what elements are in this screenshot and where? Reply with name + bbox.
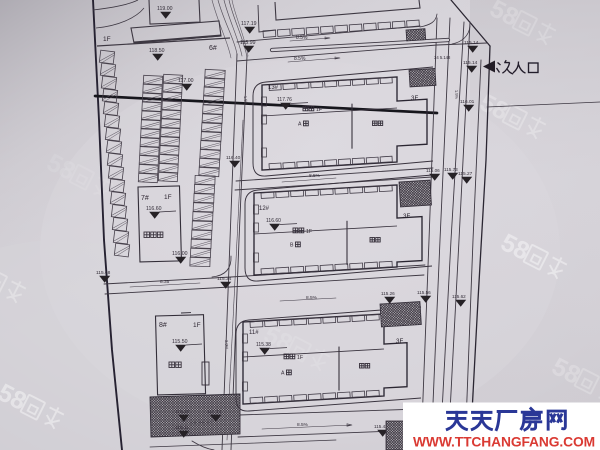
svg-text:117.76: 117.76 (277, 97, 292, 103)
svg-text:116.60: 116.60 (266, 218, 281, 224)
svg-text:6#: 6# (209, 45, 217, 52)
svg-text:115.27: 115.27 (458, 171, 473, 177)
svg-text:11#: 11# (249, 330, 259, 336)
svg-text:117.19: 117.19 (241, 21, 257, 27)
svg-text:3F: 3F (403, 213, 410, 220)
svg-text:8.5%: 8.5% (306, 295, 318, 301)
svg-text:1F: 1F (297, 355, 303, 361)
svg-text:B: B (290, 243, 294, 249)
svg-text:115.68: 115.68 (96, 270, 111, 276)
svg-text:WWW.TTCHANGFANG.COM: WWW.TTCHANGFANG.COM (413, 435, 595, 450)
svg-text:117.00: 117.00 (178, 78, 194, 84)
svg-text:1.5%: 1.5% (454, 90, 459, 100)
svg-text:116.60: 116.60 (146, 206, 162, 212)
svg-text:115.14: 115.14 (463, 60, 478, 66)
svg-text:1F: 1F (164, 194, 172, 201)
svg-text:115.38: 115.38 (256, 342, 271, 348)
svg-text:1.5%: 1.5% (243, 96, 249, 106)
svg-text:115.73: 115.73 (444, 167, 458, 172)
svg-text:115.34: 115.34 (175, 409, 190, 415)
svg-text:115.06: 115.06 (426, 168, 440, 173)
svg-text:116.40: 116.40 (226, 155, 241, 161)
svg-text:A: A (298, 122, 302, 128)
svg-text:118.50: 118.50 (149, 48, 165, 54)
svg-text:1F: 1F (193, 322, 201, 329)
svg-text:12#: 12# (259, 206, 270, 212)
svg-text:115.11: 115.11 (175, 425, 189, 431)
svg-text:115.14: 115.14 (207, 409, 222, 415)
svg-text:1F: 1F (103, 36, 111, 43)
svg-text:115.99: 115.99 (240, 40, 256, 46)
svg-text:116.00: 116.00 (172, 251, 188, 257)
svg-text:3F: 3F (396, 338, 403, 345)
svg-text:8.5%: 8.5% (309, 173, 321, 179)
svg-text:3.0M: 3.0M (224, 340, 229, 349)
svg-text:3F: 3F (411, 95, 418, 102)
svg-text:115.50: 115.50 (172, 339, 188, 345)
svg-text:1F: 1F (306, 229, 312, 235)
svg-text:115.62: 115.62 (452, 294, 466, 299)
svg-text:7#: 7# (141, 195, 149, 202)
svg-text:119.00: 119.00 (157, 6, 173, 12)
svg-text:115.14: 115.14 (464, 40, 479, 46)
svg-text:34 5.148: 34 5.148 (434, 55, 451, 60)
svg-text:115.56: 115.56 (417, 290, 431, 295)
svg-text:8#: 8# (159, 322, 167, 329)
svg-text:8.35: 8.35 (160, 279, 170, 285)
svg-text:1F: 1F (316, 107, 322, 113)
svg-text:116.01: 116.01 (460, 99, 475, 105)
svg-text:115.26: 115.26 (381, 291, 395, 296)
svg-text:A: A (281, 371, 285, 377)
svg-text:13#: 13# (268, 85, 279, 91)
svg-text:115.34: 115.34 (217, 276, 232, 282)
